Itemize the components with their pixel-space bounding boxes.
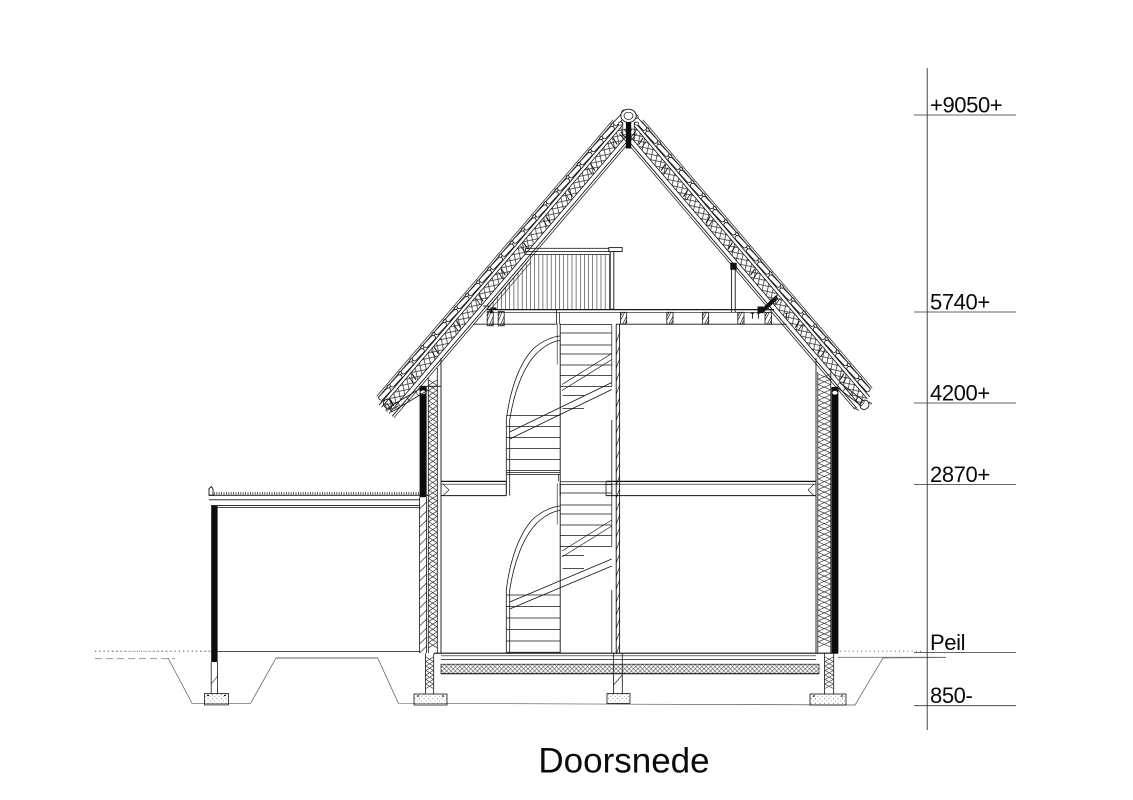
svg-text:+9050+: +9050+: [930, 93, 1002, 118]
svg-text:5740+: 5740+: [930, 290, 990, 315]
svg-text:Doorsnede: Doorsnede: [538, 742, 709, 781]
svg-text:2870+: 2870+: [930, 462, 990, 487]
svg-text:4200+: 4200+: [930, 381, 990, 406]
svg-text:Peil: Peil: [930, 630, 965, 655]
svg-text:850-: 850-: [930, 683, 973, 708]
